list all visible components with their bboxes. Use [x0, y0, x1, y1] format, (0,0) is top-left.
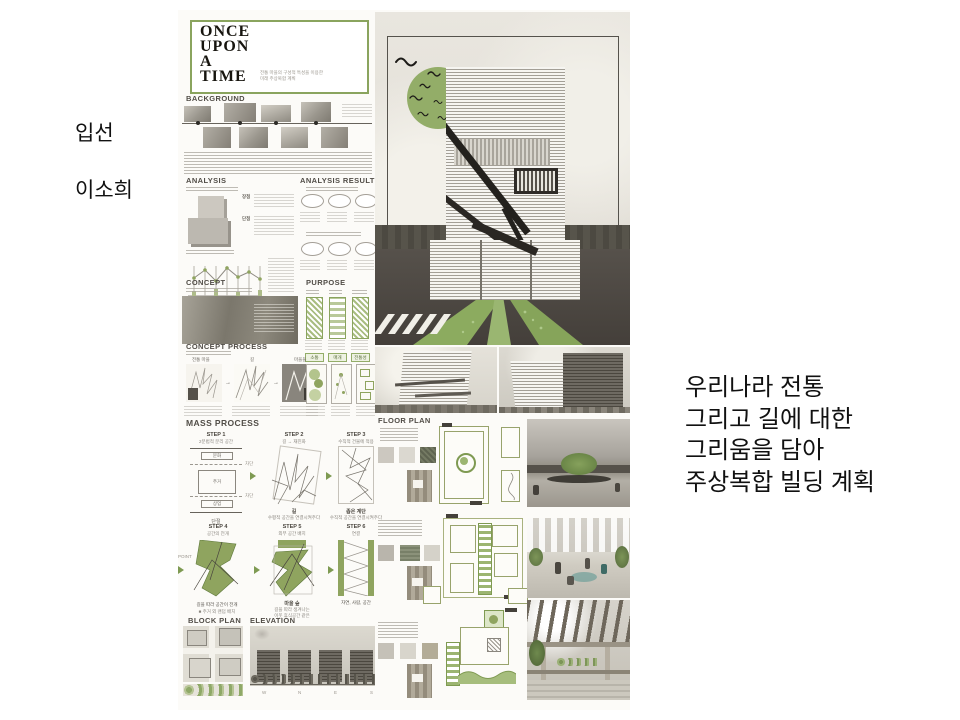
step1-cut-label: 차단 — [245, 461, 253, 467]
concept-photo-notes — [254, 304, 294, 334]
window-wall — [527, 518, 630, 552]
axon-base-block — [188, 218, 228, 244]
floor-plan-3 — [445, 608, 520, 692]
poster-subtitle: 전통 마을의 구성적 특성을 이용한 미래 주상복합 계획 — [260, 70, 360, 82]
person — [567, 576, 574, 585]
elevation-letter-s: S — [370, 690, 373, 696]
analysis-note-2 — [186, 250, 234, 254]
heading-block-plan: BLOCK PLAN — [188, 616, 241, 625]
step2-subtitle: 길 → 재진화 — [264, 439, 324, 445]
tag-chip: 소통 — [305, 353, 324, 362]
title-line: A — [200, 54, 250, 69]
result-title-2 — [306, 232, 361, 236]
plan-wave-band — [458, 666, 516, 686]
step1-diagram: 문화 차단 주거 차단 상업 — [190, 448, 242, 514]
result-oval — [355, 242, 377, 256]
material-swatch — [378, 643, 394, 659]
divider — [190, 448, 242, 449]
step2-caption: 길 — [268, 508, 320, 515]
heading-mass-process: MASS PROCESS — [186, 418, 259, 428]
block-plan-greenery — [183, 684, 243, 696]
title-line: ONCE — [200, 24, 250, 39]
author-text: 이소희 — [75, 177, 133, 205]
purpose-caption — [305, 340, 322, 350]
green-blob — [309, 389, 321, 401]
step1-box-housing: 주거 — [198, 470, 236, 494]
notch — [412, 674, 423, 682]
heading-floor-plan: FLOOR PLAN — [378, 416, 431, 425]
map-label-3: 마을들 — [294, 357, 306, 363]
material-swatch — [420, 447, 436, 463]
plan-room — [492, 525, 518, 547]
award-label[interactable]: 입선 이소희 — [75, 92, 133, 234]
timeline-dot — [314, 121, 318, 125]
plan-green-core — [478, 523, 492, 595]
building-outline — [219, 658, 241, 676]
divider — [190, 512, 242, 513]
material-swatch — [378, 545, 394, 561]
material-swatch — [399, 447, 415, 463]
lower-deck — [527, 680, 630, 700]
step5-label: STEP 5 — [266, 524, 318, 530]
result-caption — [300, 212, 320, 223]
material-swatch — [424, 545, 440, 561]
map-caption — [184, 406, 222, 418]
material-swatch — [422, 643, 438, 659]
timeline-dot — [238, 121, 242, 125]
plan3-notes — [378, 622, 418, 638]
step3-label: STEP 3 — [336, 432, 376, 438]
plan2-notes — [378, 520, 422, 536]
purpose-label — [306, 290, 319, 294]
timeline-photo — [301, 102, 331, 122]
floor-plan-1 — [439, 426, 489, 504]
process-arrow — [326, 472, 332, 480]
purpose-caption — [328, 340, 345, 350]
concept-subtitle — [186, 288, 252, 292]
lounge-rendering — [527, 518, 630, 598]
plant — [529, 548, 543, 566]
step6-subtitle: 연결 — [336, 531, 376, 537]
step6-caption: 자연, 사람, 공간 — [332, 600, 380, 606]
panel-caption — [306, 406, 325, 418]
person — [533, 485, 539, 495]
map-label-1: 전통 마을 — [192, 357, 210, 363]
process-arrow — [254, 566, 260, 574]
floor-plan-small — [501, 427, 520, 458]
step3-diagram — [336, 446, 376, 506]
step2-diagram — [268, 446, 320, 506]
result-title-1 — [306, 187, 358, 191]
person — [615, 483, 620, 492]
plan-annex — [508, 588, 528, 604]
planter — [557, 658, 597, 666]
plant — [529, 640, 545, 666]
caption-line: 우리나라 전통 — [685, 372, 875, 404]
timeline-photo — [224, 103, 256, 122]
floor-plan-curve — [501, 470, 520, 502]
concept-process-subtitle — [186, 351, 231, 355]
analysis-cons-text — [254, 216, 294, 236]
rendering-dark-tower — [499, 347, 630, 413]
timeline-photo — [321, 127, 348, 148]
ceiling-slats — [527, 600, 630, 642]
cut-line — [190, 496, 242, 497]
map-caption — [232, 406, 270, 418]
person — [601, 564, 607, 574]
step4-note: ■ 주거 외 랜덤 배치 — [182, 609, 252, 615]
plan-tag — [470, 501, 482, 505]
elevation-letter-e: E — [334, 690, 337, 696]
plan-room — [460, 627, 509, 665]
title-line: UPON — [200, 39, 250, 54]
subtitle-1: 전통 마을의 구성적 특성을 이용한 — [260, 70, 323, 75]
material-swatch — [378, 447, 394, 463]
tree-line — [250, 674, 375, 684]
concept-aerial-photo — [182, 296, 298, 344]
result-oval — [328, 242, 351, 256]
court-circle — [489, 615, 498, 624]
analysis-note — [186, 187, 238, 191]
step5-caption: 마을 숲 — [266, 600, 318, 607]
map-arrow: → — [273, 380, 279, 386]
step6-diagram — [338, 540, 374, 596]
building-outline — [219, 628, 241, 646]
step4-point-label: POINT — [178, 554, 192, 560]
process-arrow — [250, 472, 256, 480]
floor-plan-2 — [443, 518, 523, 598]
panel-caption — [356, 406, 375, 418]
person — [555, 562, 561, 574]
map-thumb-road — [234, 364, 270, 402]
plan-tag — [446, 514, 458, 518]
award-text: 입선 — [75, 120, 133, 148]
building-outline — [189, 658, 211, 678]
timeline-photo — [184, 106, 211, 122]
result-oval — [328, 194, 351, 208]
heading-elevation: ELEVATION — [250, 616, 295, 625]
heading-concept-process: CONCEPT PROCESS — [186, 342, 267, 351]
elevation-drawing — [250, 626, 375, 686]
result-caption — [327, 212, 347, 223]
tag-chip: 매개 — [328, 353, 347, 362]
green-bar — [368, 540, 374, 596]
map-label-2: 길 — [250, 357, 254, 363]
plan-tag — [505, 608, 517, 612]
analysis-cons-label: 단점 — [242, 216, 250, 222]
heading-purpose: PURPOSE — [306, 278, 345, 287]
terrace-rendering — [527, 600, 630, 700]
building-outline — [187, 630, 207, 646]
timeline-dot — [196, 121, 200, 125]
material-swatch — [400, 643, 416, 659]
purpose-panel — [352, 297, 369, 339]
dark-tower — [563, 353, 623, 413]
result-caption — [354, 260, 374, 272]
slide-caption[interactable]: 우리나라 전통 그리고 길에 대한 그리움을 담아 주상복합 빌딩 계획 — [685, 372, 875, 499]
podium-building — [430, 240, 580, 300]
step1-label: STEP 1 — [192, 432, 240, 438]
elevation-letter-n: N — [298, 690, 301, 696]
plant — [615, 546, 629, 568]
step4-caption: 길을 따라 공간이 전개 — [182, 602, 252, 608]
purpose-panel — [329, 297, 346, 339]
olive-shape — [360, 392, 371, 400]
step3-subtitle: 수직적 건물에 적용 — [328, 439, 384, 445]
step1-subtitle: 2분법적 분리 공간 — [184, 439, 248, 445]
result-caption — [327, 260, 347, 272]
result-oval — [301, 242, 324, 256]
atrium-tree — [561, 453, 597, 475]
poster-board[interactable]: ONCE UPON A TIME 전통 마을의 구성적 특성을 이용한 미래 주… — [178, 10, 630, 710]
map-arrow: → — [225, 380, 231, 386]
cut-line — [190, 464, 242, 465]
notch — [412, 578, 423, 586]
crosswalk — [377, 312, 469, 338]
planter-ring — [547, 475, 611, 483]
map-thumb-village — [186, 364, 222, 402]
person — [585, 558, 590, 569]
texture-strip — [407, 664, 432, 698]
tag-chip: 전통성 — [351, 353, 370, 362]
green-blob — [314, 379, 323, 388]
analysis-pros-label: 장점 — [242, 194, 250, 200]
plan-room — [450, 563, 474, 593]
step5-diagram — [268, 540, 316, 598]
atrium-rendering — [527, 419, 630, 507]
result-caption — [354, 212, 374, 223]
texture-strip — [407, 470, 432, 502]
timeline-legend — [342, 104, 372, 118]
tree-line — [499, 407, 630, 413]
floor-plan-notes — [380, 428, 418, 442]
block-plan-drawing — [183, 626, 243, 682]
light-tower — [510, 361, 567, 411]
material-swatch — [400, 545, 420, 561]
timeline-photo — [239, 127, 268, 148]
caption-line: 그리움을 담아 — [685, 435, 875, 467]
result-caption — [300, 260, 320, 272]
step4-diagram — [192, 540, 242, 598]
crack-line — [446, 97, 531, 235]
result-oval — [355, 194, 377, 208]
purpose-label — [329, 290, 342, 294]
olive-shape — [365, 381, 374, 390]
step4-subtitle: 공간의 전개 — [190, 531, 246, 537]
panel-caption — [331, 406, 350, 418]
result-oval — [301, 194, 324, 208]
diagram-panel-dots — [331, 364, 352, 404]
plan-room — [494, 553, 518, 577]
plan-annex — [423, 586, 441, 604]
purpose-panel — [306, 297, 323, 339]
timeline-dot — [274, 121, 278, 125]
step1-box-culture: 문화 — [201, 452, 233, 460]
stair-core — [487, 638, 501, 652]
analysis-pros-text — [254, 194, 294, 208]
step2-label: STEP 2 — [268, 432, 320, 438]
rendering-white-tower — [375, 347, 497, 413]
purpose-label — [352, 290, 367, 294]
chart-legend-text — [268, 258, 294, 292]
process-arrow — [328, 566, 334, 574]
step4-label: STEP 4 — [194, 524, 242, 530]
purpose-caption — [351, 340, 368, 350]
axon-top-block — [198, 196, 224, 220]
step1-cut-label: 차단 — [245, 493, 253, 499]
step2-note: 수평적 공간을 연결시켜주다 — [258, 515, 330, 521]
timeline-photo — [281, 127, 308, 148]
caption-line: 그리고 길에 대한 — [685, 404, 875, 436]
notch — [413, 480, 423, 488]
heading-analysis: ANALYSIS — [186, 176, 226, 185]
poster-title: ONCE UPON A TIME — [200, 24, 250, 84]
step1-box-commerce: 상업 — [201, 500, 233, 508]
subtitle-2: 미래 주상복합 계획 — [260, 76, 296, 81]
elevation-letter-w: W — [262, 690, 266, 696]
heading-concept: CONCEPT — [186, 278, 225, 287]
seam — [480, 240, 482, 300]
step5-subtitle: 외부 공간 배치 — [262, 531, 322, 537]
background-paragraph — [184, 152, 372, 174]
olive-shape — [360, 369, 370, 377]
ground-line — [250, 684, 375, 685]
mid-box-slats — [517, 171, 555, 191]
rail — [527, 670, 630, 674]
heading-background: BACKGROUND — [186, 94, 245, 103]
heading-analysis-result: ANALYSIS RESULT — [300, 176, 375, 185]
process-arrow — [178, 566, 184, 574]
step3-caption: 좁은 계단 — [336, 508, 376, 515]
main-rendering — [375, 12, 630, 345]
slide: { "slide": { "award": "입선", "author": "이… — [0, 0, 960, 720]
plan-tag — [442, 423, 452, 427]
caption-line: 주상복합 빌딩 계획 — [685, 467, 875, 499]
plan-green-core — [460, 457, 468, 465]
cloud-sketch — [254, 628, 270, 640]
plan-room — [450, 525, 476, 553]
diagram-panel-shapes — [356, 364, 377, 404]
tower-mid-box — [514, 168, 558, 194]
title-line: TIME — [200, 69, 250, 84]
step6-label: STEP 6 — [336, 524, 376, 530]
teal-mat — [571, 572, 597, 582]
timeline-photo — [261, 105, 291, 122]
timeline-photo — [203, 127, 231, 148]
title-box: ONCE UPON A TIME 전통 마을의 구성적 특성을 이용한 미래 주… — [190, 20, 369, 94]
diagram-panel-circles — [306, 364, 327, 404]
tree-line — [375, 405, 497, 413]
